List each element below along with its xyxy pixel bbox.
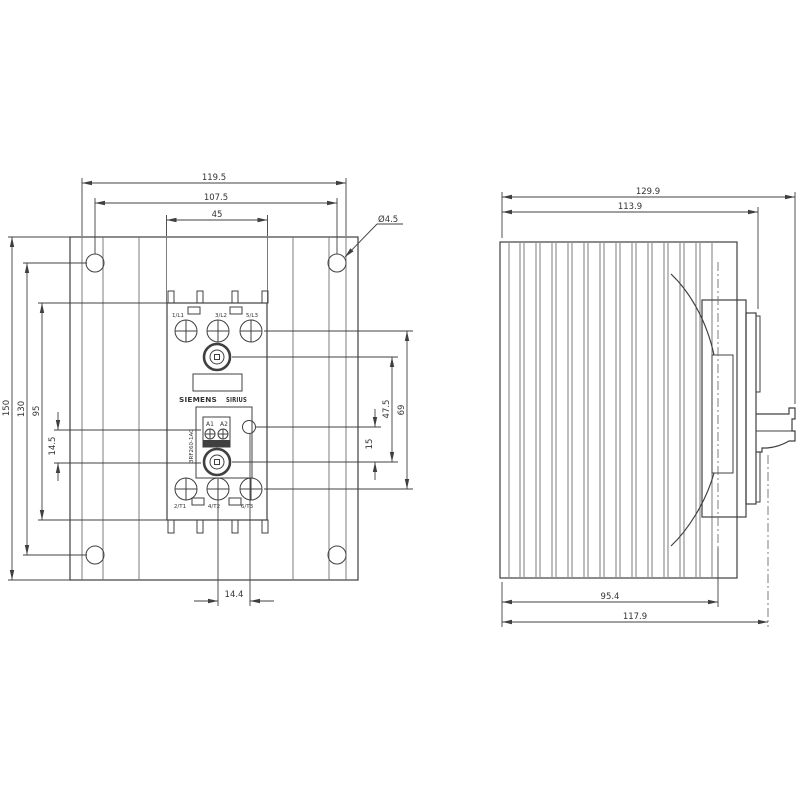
coil-terminal-label-A2: A2 [220,421,228,428]
front-block-side [746,313,756,504]
front-heatsink-plate [70,237,358,580]
status-indicator [243,421,256,434]
terminal-label-6T3: 6/T3 [241,504,254,510]
drawing-canvas: 1/L1 3/L2 5/L3 SIEMENS SIRIUS [0,0,800,800]
housing-curve-bottom [671,473,714,546]
front-device: 1/L1 3/L2 5/L3 SIEMENS SIRIUS [167,291,268,533]
label-plate [193,374,242,391]
mounting-hole-top-left [86,254,104,272]
terminal-label-5L3: 5/L3 [246,313,258,319]
brand-text: SIEMENS [179,396,217,404]
dim-hole-diameter: Ø4.5 [378,214,398,225]
dim-device-height: 95 [32,406,42,417]
terminal-label-3L2: 3/L2 [215,313,227,319]
fixing-screw-upper [204,344,230,370]
coil-terminal-label-A1: A1 [206,421,214,428]
device-inner-step [712,355,733,473]
mounting-hole-bottom-right [328,546,346,564]
coil-terminal-block: A1 A2 [203,417,230,447]
din-rail-clip [756,408,795,452]
part-number-text: 3RF260-1AC [189,429,195,463]
mounting-hole-bottom-left [86,546,104,564]
plate-outline [70,237,358,580]
mounting-hole-top-right [328,254,346,272]
housing-curve-top [671,274,714,355]
dim-overall-height: 150 [2,400,12,416]
terminal-label-1L1: 1/L1 [172,313,184,319]
front-dimensions: 119.5 107.5 45 Ø4.5 150 130 95 [2,173,413,606]
side-view: 129.9 113.9 95.4 117.9 [500,187,795,627]
dim-hole-spacing-horizontal: 107.5 [204,193,228,203]
dim-side-body-width: 113.9 [618,202,642,212]
terminal-screw-5L3 [240,320,262,342]
side-dimensions: 129.9 113.9 95.4 117.9 [502,187,795,627]
dim-screw-spacing: 47.5 [382,400,392,419]
series-text: SIRIUS [226,396,247,404]
terminal-label-2T1: 2/T1 [174,504,186,510]
dim-heatsink-depth: 95.4 [601,592,620,602]
front-view: 1/L1 3/L2 5/L3 SIEMENS SIRIUS [2,173,413,606]
device-body-side [702,300,746,517]
terminal-screw-1L1 [175,320,197,342]
technical-drawing: 1/L1 3/L2 5/L3 SIEMENS SIRIUS [0,0,800,800]
dim-hole-spacing-vertical: 130 [17,401,27,417]
dim-coil-block-offset: 14.5 [48,437,58,456]
dim-indicator-center-offset: 14.4 [225,590,244,600]
dim-overall-depth: 117.9 [623,612,647,622]
dim-overall-width: 119.5 [202,173,226,183]
fixing-screw-lower [204,449,230,475]
terminal-screw-2T1 [175,478,197,500]
dim-terminal-row-spacing: 69 [397,405,407,416]
dim-device-width: 45 [212,210,223,220]
dim-side-overall-width: 129.9 [636,187,660,197]
coil-block-band [203,440,230,447]
side-device [671,262,795,627]
terminal-screw-6T3 [240,478,262,500]
dim-indicator-offset: 15 [365,439,375,450]
terminal-screw-3L2 [207,320,229,342]
